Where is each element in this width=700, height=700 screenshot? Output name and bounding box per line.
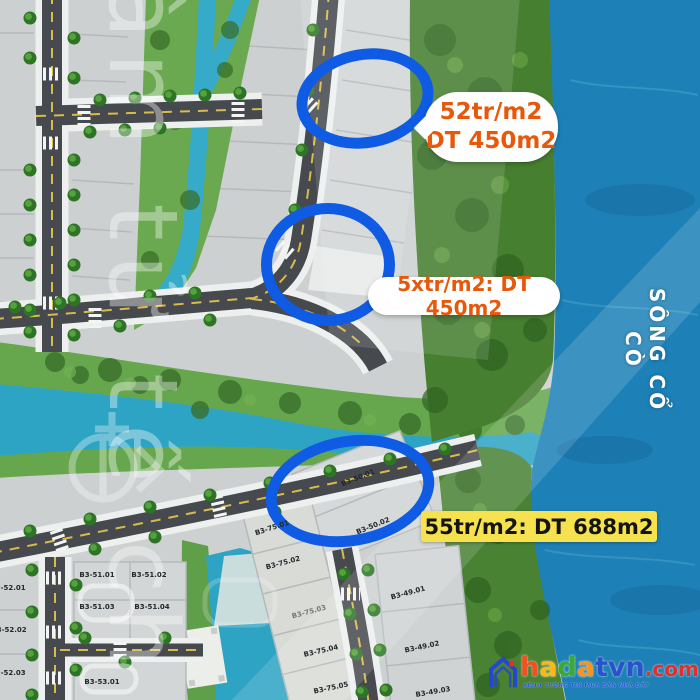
brand-letter: t [595,652,608,683]
brand-suffix: .com.vn [645,657,700,681]
lot-label: B3-52.02 [0,626,27,634]
price-label-bottom: 55tr/m2: DT 688m2 [421,511,657,542]
brand-letter: h [520,652,539,683]
brand-letter: d [557,652,576,683]
brand-vn: vn [608,652,645,683]
listing-screenshot: làm tử tế ch 52tr/m2 DT 450m2 5xtr/m2: D… [0,0,700,700]
brand-letter: a [539,652,557,683]
price-label-top: 52tr/m2 DT 450m2 [424,92,558,162]
lot-label: B3-51.01 [79,571,114,579]
lot-label: B3-52.03 [0,669,26,677]
price-line: 5xtr/m2: DT 450m2 [368,272,560,320]
price-line: 52tr/m2 [440,98,543,127]
brand-logo: hadatvn.com.vn KÊNH THÔNG TIN MUA BÁN NH… [487,652,699,698]
river-name: SÔNG CỔ CÒ [639,265,669,435]
price-label-middle: 5xtr/m2: DT 450m2 [368,277,560,315]
lot-label: B3-51.02 [131,571,166,579]
lot-label: B3-52.01 [0,584,26,592]
house-icon [487,654,519,690]
brand-tagline: KÊNH THÔNG TIN MUA BÁN NHÀ ĐẤT [523,683,649,689]
lot-label: B3-51.03 [79,603,114,611]
watermark-text: làm tử tế ch [67,0,217,700]
brand-letter: a [577,652,595,683]
lot-label: B3-53.01 [84,678,119,686]
brand-wordmark: hadatvn.com.vn [520,652,700,683]
area-line: DT 450m2 [426,127,557,156]
lot-label: B3-51.04 [134,603,169,611]
